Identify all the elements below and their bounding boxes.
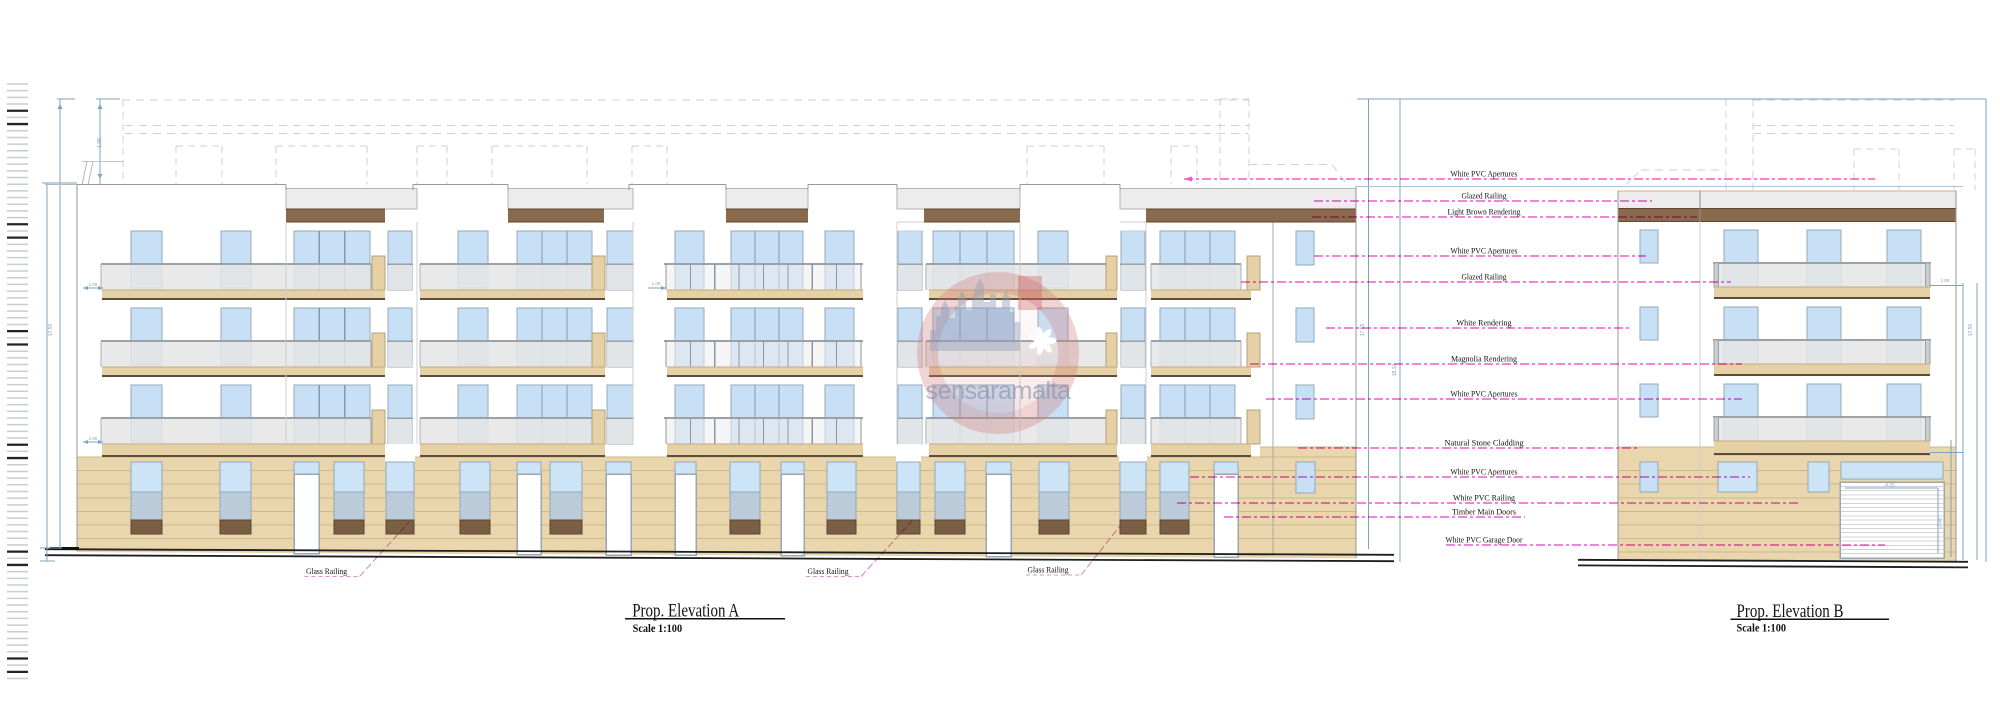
svg-text:White PVC Garage Door: White PVC Garage Door — [1446, 535, 1523, 545]
svg-text:White PVC Apertures: White PVC Apertures — [1451, 389, 1518, 399]
svg-text:White PVC Railing: White PVC Railing — [1453, 493, 1516, 503]
svg-text:Magnolia Rendering: Magnolia Rendering — [1451, 354, 1518, 364]
svg-text:1.08: 1.08 — [97, 138, 103, 148]
svg-text:1.00: 1.00 — [652, 281, 661, 286]
svg-text:sensaramalta: sensaramalta — [926, 377, 1072, 405]
svg-text:1.00: 1.00 — [1941, 278, 1950, 283]
svg-text:Scale 1:100: Scale 1:100 — [633, 621, 683, 635]
svg-text:Scale 1:100: Scale 1:100 — [1737, 621, 1787, 635]
svg-text:Glazed Railing: Glazed Railing — [1462, 191, 1508, 201]
svg-text:17.55: 17.55 — [1360, 324, 1366, 337]
svg-text:18.10: 18.10 — [1392, 364, 1398, 377]
svg-text:Glass Railing: Glass Railing — [1028, 565, 1070, 575]
svg-text:Glazed Railing: Glazed Railing — [1462, 272, 1508, 282]
svg-text:Glass Railing: Glass Railing — [306, 566, 348, 576]
svg-text:17.55: 17.55 — [1968, 324, 1974, 337]
svg-text:White PVC Apertures: White PVC Apertures — [1451, 169, 1518, 179]
svg-text:Timber Main Doors: Timber Main Doors — [1452, 507, 1516, 517]
svg-text:1.00: 1.00 — [89, 282, 98, 287]
svg-text:17.55: 17.55 — [48, 324, 54, 337]
svg-text:White Rendering: White Rendering — [1457, 318, 1513, 328]
svg-text:White PVC Apertures: White PVC Apertures — [1451, 246, 1518, 256]
svg-text:Natural Stone Cladding: Natural Stone Cladding — [1445, 438, 1525, 448]
svg-text:Glass Railing: Glass Railing — [808, 566, 850, 576]
svg-text:2.44: 2.44 — [1938, 518, 1944, 528]
svg-text:1.00: 1.00 — [89, 436, 98, 441]
svg-text:White PVC Apertures: White PVC Apertures — [1451, 467, 1518, 477]
svg-text:4.25: 4.25 — [1885, 483, 1895, 489]
svg-text:Light Brown Rendering: Light Brown Rendering — [1448, 207, 1522, 217]
